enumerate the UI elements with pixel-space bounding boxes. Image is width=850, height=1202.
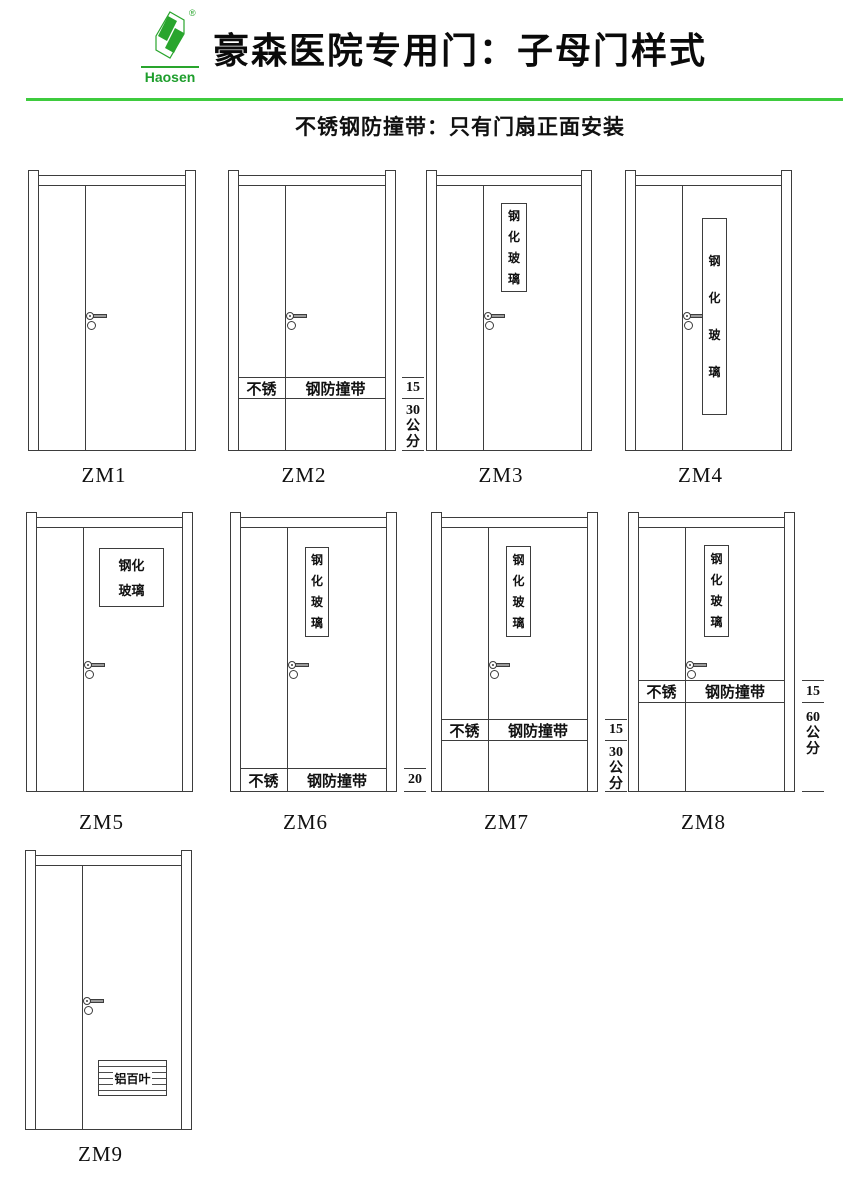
glass-panel: 钢化玻璃 — [501, 203, 527, 292]
frame-right-post — [581, 170, 592, 451]
door-handle — [288, 661, 310, 681]
threshold-line — [426, 450, 592, 451]
lock-cylinder-icon — [687, 670, 696, 679]
handle-lever-icon — [496, 663, 510, 667]
dim-band-height: 15 — [605, 723, 627, 737]
impact-band-label-right: 钢防撞带 — [285, 378, 386, 399]
handle-lever-icon — [90, 999, 104, 1003]
threshold-line — [431, 791, 598, 792]
door-handle — [686, 661, 708, 681]
catalog-page: ® Haosen 豪森医院专用门：子母门样式 不锈钢防撞带：只有门扇正面安装 — [0, 0, 850, 1202]
frame-right-post — [185, 170, 196, 451]
louver-label: 铝百叶 — [113, 1070, 151, 1087]
dim-offset-value: 60 — [806, 710, 820, 726]
dim-offset-unit: 公分 — [608, 761, 623, 793]
lock-cylinder-icon — [490, 670, 499, 679]
dim-tick — [605, 740, 627, 741]
lock-cylinder-icon — [289, 670, 298, 679]
dim-offset-value: 30 — [406, 403, 420, 419]
frame-left-post — [628, 512, 639, 792]
frame-left-post — [431, 512, 442, 792]
frame-left-post — [230, 512, 241, 792]
door-label-zm6: ZM6 — [222, 810, 389, 835]
frame-right-post — [182, 512, 193, 792]
handle-lever-icon — [693, 663, 707, 667]
door-label-zm4: ZM4 — [617, 463, 784, 488]
handle-lever-icon — [293, 314, 307, 318]
frame-lintel — [441, 517, 588, 528]
frame-lintel — [35, 855, 182, 866]
frame-right-post — [784, 512, 795, 792]
glass-label: 钢化玻璃 — [507, 206, 522, 290]
frame-lintel — [238, 175, 386, 186]
frame-lintel — [36, 517, 183, 528]
leaf-divider — [685, 528, 686, 791]
dim-offset-value: 30 — [609, 745, 623, 761]
door-handle — [286, 312, 308, 332]
door-handle — [86, 312, 108, 332]
door-label-zm9: ZM9 — [17, 1142, 184, 1167]
lock-cylinder-icon — [84, 1006, 93, 1015]
dim-tick — [402, 377, 424, 378]
impact-band-label-right: 钢防撞带 — [685, 681, 785, 702]
lock-cylinder-icon — [85, 670, 94, 679]
lock-cylinder-icon — [684, 321, 693, 330]
impact-band-label-left: 不锈 — [441, 720, 488, 741]
frame-left-post — [25, 850, 36, 1130]
door-handle — [83, 997, 105, 1017]
dimension-annotation: 20 — [404, 768, 426, 792]
door-label-zm7: ZM7 — [423, 810, 590, 835]
frame-left-post — [426, 170, 437, 451]
impact-band: 不锈 钢防撞带 — [441, 719, 588, 741]
glass-panel: 钢化玻璃 — [704, 545, 729, 637]
leaf-divider — [287, 528, 288, 791]
dim-band-height: 20 — [404, 773, 426, 787]
leaf-divider — [83, 528, 84, 791]
glass-panel: 钢化玻璃 — [99, 548, 164, 607]
door-label-zm2: ZM2 — [220, 463, 388, 488]
lock-cylinder-icon — [485, 321, 494, 330]
glass-panel: 钢化玻璃 — [305, 547, 329, 637]
door-handle — [484, 312, 506, 332]
glass-label: 钢化玻璃 — [709, 549, 724, 633]
door-label-zm5: ZM5 — [18, 810, 185, 835]
frame-right-post — [587, 512, 598, 792]
impact-band-label-left: 不锈 — [638, 681, 685, 702]
door-label-zm3: ZM3 — [418, 463, 584, 488]
threshold-line — [25, 1129, 192, 1130]
impact-band-label-left: 不锈 — [238, 378, 285, 399]
frame-right-post — [181, 850, 192, 1130]
louver-panel: 铝百叶 — [98, 1060, 167, 1096]
frame-left-post — [228, 170, 239, 451]
door-zm2: 不锈 钢防撞带 15 30 公分 — [228, 170, 396, 451]
dim-tick — [402, 450, 424, 451]
handle-lever-icon — [491, 314, 505, 318]
impact-band: 不锈 钢防撞带 — [638, 680, 785, 703]
door-zm3: 钢化玻璃 — [426, 170, 592, 451]
handle-lever-icon — [93, 314, 107, 318]
door-label-zm1: ZM1 — [20, 463, 188, 488]
dim-tick — [605, 719, 627, 720]
registered-mark: ® — [189, 8, 196, 18]
impact-band: 不锈 钢防撞带 — [238, 377, 386, 399]
impact-band-label-right: 钢防撞带 — [287, 770, 387, 791]
leaf-divider — [488, 528, 489, 791]
frame-right-post — [385, 170, 396, 451]
door-zm8: 钢化玻璃 不锈 钢防撞带 15 60 公分 — [628, 512, 795, 792]
door-zm9: 铝百叶 — [25, 850, 192, 1130]
frame-left-post — [26, 512, 37, 792]
dim-offset-unit: 公分 — [805, 726, 820, 758]
header-divider-line — [26, 98, 843, 101]
dimension-annotation: 15 30 公分 — [402, 377, 424, 451]
frame-lintel — [635, 175, 782, 186]
dim-band-height: 15 — [402, 381, 424, 395]
dimension-annotation: 15 60 公分 — [802, 680, 824, 792]
door-zm1 — [28, 170, 196, 451]
impact-band-label-left: 不锈 — [240, 770, 287, 791]
dim-tick — [402, 398, 424, 399]
threshold-line — [628, 791, 795, 792]
threshold-line — [26, 791, 193, 792]
frame-lintel — [436, 175, 582, 186]
glass-label: 钢化玻璃 — [310, 550, 325, 634]
page-subtitle: 不锈钢防撞带：只有门扇正面安装 — [130, 111, 790, 141]
handle-lever-icon — [295, 663, 309, 667]
dim-tick — [404, 768, 426, 769]
dim-band-height: 15 — [802, 685, 824, 699]
glass-label: 钢化玻璃 — [117, 553, 147, 603]
door-zm4: 钢化玻璃 — [625, 170, 792, 451]
frame-lintel — [240, 517, 387, 528]
dim-tick — [802, 702, 824, 703]
frame-right-post — [386, 512, 397, 792]
handle-lever-icon — [91, 663, 105, 667]
door-zm5: 钢化玻璃 — [26, 512, 193, 792]
dim-tick — [802, 791, 824, 792]
lock-cylinder-icon — [287, 321, 296, 330]
frame-right-post — [781, 170, 792, 451]
impact-band-label-right: 钢防撞带 — [488, 720, 588, 741]
dim-offset-unit: 公分 — [405, 419, 420, 451]
door-zm6: 钢化玻璃 不锈 钢防撞带 20 — [230, 512, 397, 792]
dim-tick — [404, 791, 426, 792]
threshold-line — [625, 450, 792, 451]
threshold-line — [28, 450, 196, 451]
frame-left-post — [625, 170, 636, 451]
door-zm7: 钢化玻璃 不锈 钢防撞带 15 30 公分 — [431, 512, 598, 792]
dimension-annotation: 15 30 公分 — [605, 719, 627, 792]
lock-cylinder-icon — [87, 321, 96, 330]
glass-panel: 钢化玻璃 — [702, 218, 727, 415]
door-label-zm8: ZM8 — [620, 810, 787, 835]
threshold-line — [228, 450, 396, 451]
dim-tick — [605, 791, 627, 792]
impact-band: 不锈 钢防撞带 — [240, 768, 387, 792]
door-handle — [489, 661, 511, 681]
page-title: 豪森医院专用门：子母门样式 — [130, 22, 790, 74]
frame-lintel — [38, 175, 186, 186]
door-handle — [84, 661, 106, 681]
dim-tick — [802, 680, 824, 681]
glass-label: 钢化玻璃 — [511, 550, 526, 634]
frame-lintel — [638, 517, 785, 528]
glass-panel: 钢化玻璃 — [506, 546, 531, 637]
frame-left-post — [28, 170, 39, 451]
glass-label: 钢化玻璃 — [707, 243, 722, 391]
